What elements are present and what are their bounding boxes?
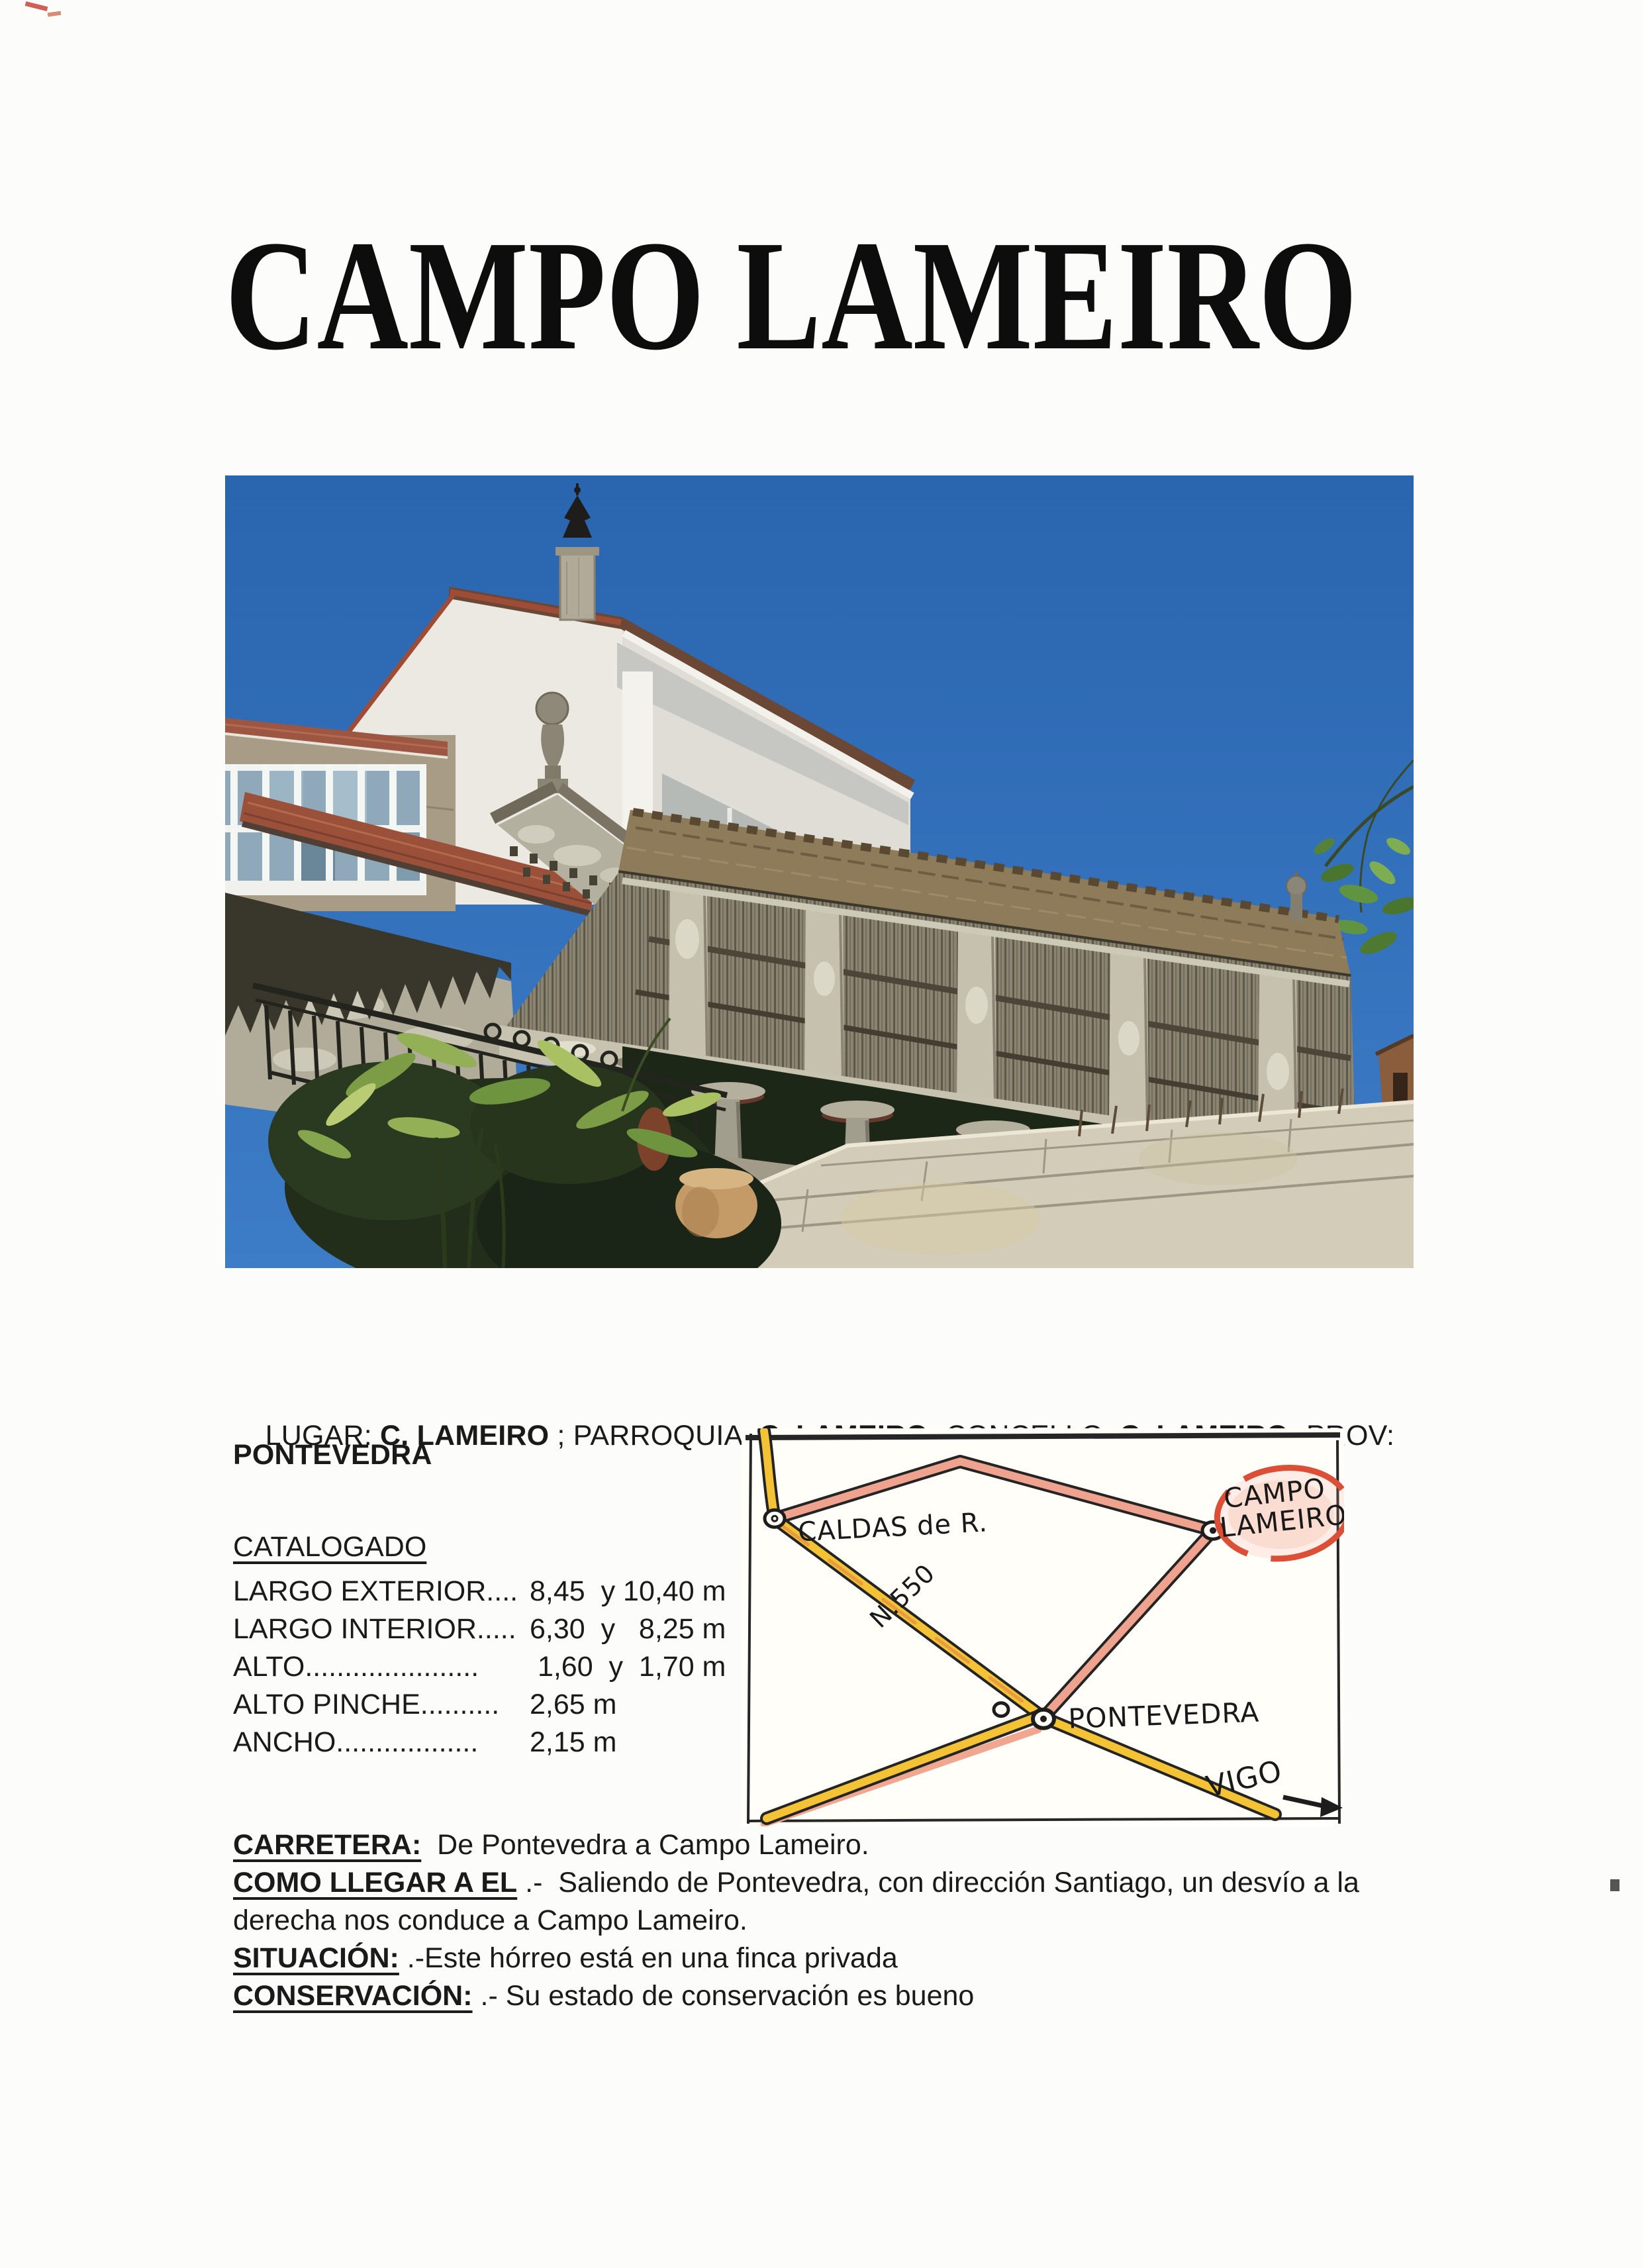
- conservacion-text: .- Su estado de conservación es bueno: [473, 1980, 975, 2012]
- catalog-row: ALTO...................... 1,60 y 1,70 m: [233, 1648, 756, 1686]
- page-title-text: CAMPO LAMEIRO: [225, 219, 1357, 381]
- catalog-value: 2,65 m: [530, 1686, 616, 1724]
- scan-mark-red-1: [25, 1, 48, 11]
- catalog-label: ALTO......................: [233, 1648, 530, 1686]
- catalog-value: 2,15 m: [530, 1724, 616, 1761]
- catalog-row: ALTO PINCHE..........2,65 m: [233, 1686, 756, 1724]
- carretera-text: De Pontevedra a Campo Lameiro.: [421, 1829, 869, 1861]
- catalog-value: 8,45 y 10,40 m: [530, 1573, 726, 1610]
- scan-mark-red-2: [48, 11, 62, 17]
- location-province: PONTEVEDRA: [233, 1439, 432, 1471]
- situacion-label: SITUACIÓN:: [233, 1942, 399, 1974]
- text-line-conservacion: CONSERVACIÓN: .- Su estado de conservaci…: [233, 1977, 1504, 2015]
- scan-mark-dark: [1610, 1879, 1619, 1891]
- text-line-continuation: derecha nos conduce a Campo Lameiro.: [233, 1902, 1504, 1940]
- catalog-heading: CATALOGADO: [233, 1531, 756, 1563]
- page-title: CAMPO LAMEIRO: [224, 219, 1402, 381]
- junction-caldas: [765, 1510, 785, 1527]
- text-line-situacion: SITUACIÓN: .-Este hórreo está en una fin…: [233, 1940, 1504, 1977]
- catalog-section: CATALOGADO LARGO EXTERIOR....8,45 y 10,4…: [233, 1531, 756, 1761]
- continuation-text: derecha nos conduce a Campo Lameiro.: [233, 1904, 748, 1936]
- text-line-carretera: CARRETERA: De Pontevedra a Campo Lameiro…: [233, 1826, 1504, 1864]
- map-label-pontevedra: PONTEVEDRA: [1068, 1697, 1260, 1735]
- conservacion-label: CONSERVACIÓN:: [233, 1980, 473, 2012]
- horreo-photo: [225, 475, 1414, 1268]
- location-label-parroquia: ; PARROQUIA:: [549, 1420, 759, 1452]
- como-llegar-text: .- Saliendo de Pontevedra, con dirección…: [517, 1867, 1359, 1898]
- catalog-label: ALTO PINCHE..........: [233, 1686, 530, 1724]
- junction-small: [994, 1703, 1008, 1716]
- description-section: CARRETERA: De Pontevedra a Campo Lameiro…: [233, 1826, 1504, 2015]
- catalog-label: LARGO EXTERIOR....: [233, 1573, 530, 1610]
- catalog-value: 6,30 y 8,25 m: [530, 1610, 726, 1648]
- catalog-row: LARGO INTERIOR.....6,30 y 8,25 m: [233, 1610, 756, 1648]
- como-llegar-label: COMO LLEGAR A EL: [233, 1867, 517, 1898]
- catalog-value: 1,60 y 1,70 m: [530, 1648, 726, 1686]
- catalog-label: ANCHO..................: [233, 1724, 530, 1761]
- catalog-row: LARGO EXTERIOR....8,45 y 10,40 m: [233, 1573, 756, 1610]
- catalog-row: ANCHO..................2,15 m: [233, 1724, 756, 1761]
- carretera-label: CARRETERA:: [233, 1829, 421, 1861]
- catalog-label: LARGO INTERIOR.....: [233, 1610, 530, 1648]
- situacion-text: .-Este hórreo está en una finca privada: [399, 1942, 898, 1974]
- text-line-como-llegar: COMO LLEGAR A EL .- Saliendo de Ponteved…: [233, 1864, 1504, 1902]
- hand-drawn-map: CALDAS de R. N.550 CAMPO LAMEIRO PONTEVE…: [742, 1428, 1344, 1826]
- scanned-document-page: CAMPO LAMEIRO: [0, 0, 1642, 2268]
